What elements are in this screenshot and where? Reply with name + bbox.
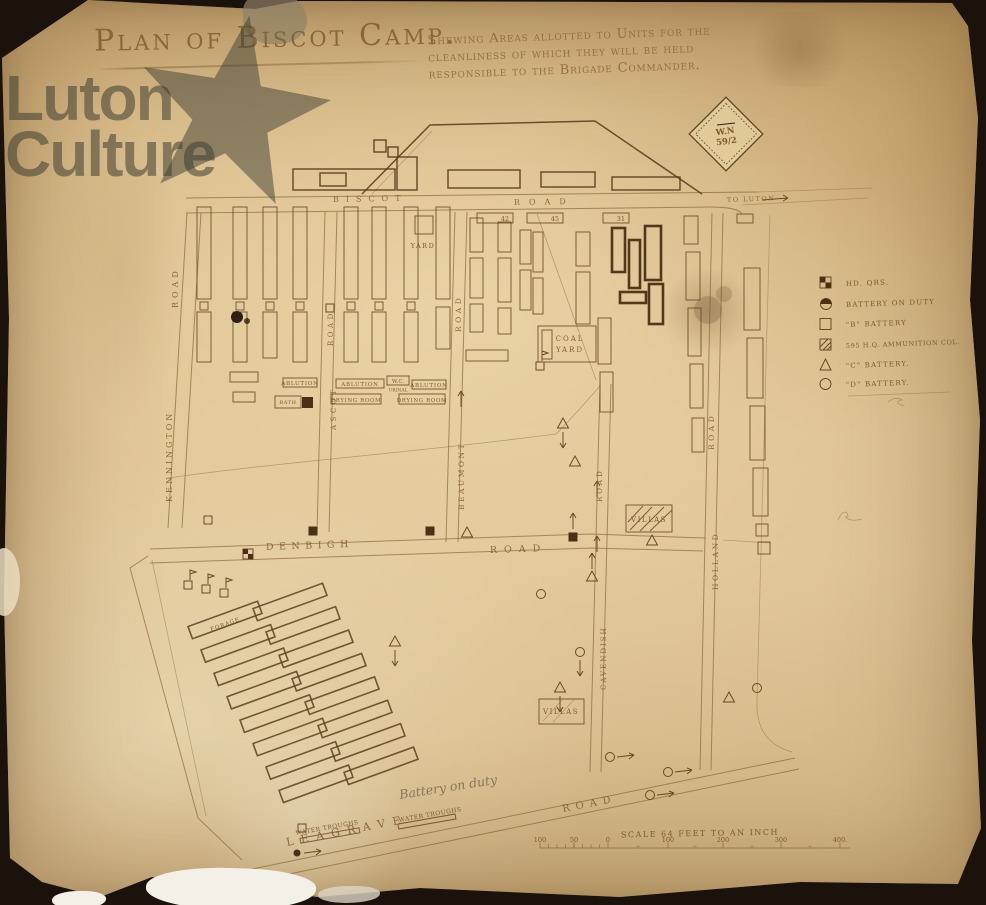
torn-edge bbox=[318, 886, 380, 903]
torn-edge bbox=[52, 891, 106, 905]
watermark-line-2: Culture bbox=[5, 126, 215, 182]
photographed-map: Plan of Biscot Camp. Shewing Areas allot… bbox=[0, 0, 986, 905]
luton-culture-watermark: Luton Culture bbox=[5, 70, 215, 183]
